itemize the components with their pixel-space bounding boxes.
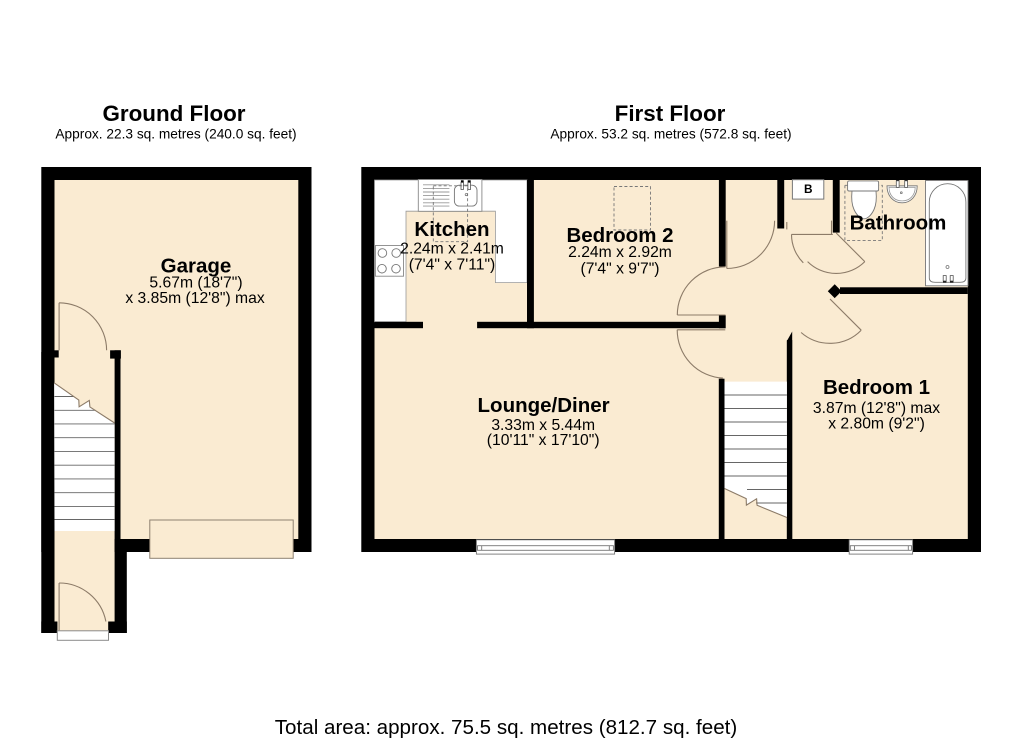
svg-text:B: B xyxy=(804,182,813,196)
svg-text:Bedroom 1: Bedroom 1 xyxy=(823,376,930,399)
svg-text:(10'11" x 17'10"): (10'11" x 17'10") xyxy=(487,432,600,449)
svg-text:5.67m (18'7"): 5.67m (18'7") xyxy=(149,275,242,292)
svg-text:(7'4" x 9'7"): (7'4" x 9'7") xyxy=(580,261,659,278)
svg-text:Lounge/Diner: Lounge/Diner xyxy=(478,394,610,417)
svg-text:Ground Floor: Ground Floor xyxy=(102,101,245,126)
svg-text:3.87m (12'8") max: 3.87m (12'8") max xyxy=(813,400,940,417)
svg-text:2.24m x 2.92m: 2.24m x 2.92m xyxy=(568,244,672,261)
svg-text:Kitchen: Kitchen xyxy=(414,218,489,241)
svg-text:Approx. 53.2 sq. metres (572.8: Approx. 53.2 sq. metres (572.8 sq. feet) xyxy=(550,127,791,142)
svg-text:x 2.80m (9'2"): x 2.80m (9'2") xyxy=(828,416,925,433)
svg-text:2.24m x 2.41m: 2.24m x 2.41m xyxy=(400,241,504,258)
svg-text:First Floor: First Floor xyxy=(615,101,726,126)
svg-text:x 3.85m (12'8") max: x 3.85m (12'8") max xyxy=(125,290,264,307)
svg-text:(7'4" x 7'11"): (7'4" x 7'11") xyxy=(409,257,496,274)
svg-text:Bathroom: Bathroom xyxy=(850,212,947,235)
svg-text:Approx. 22.3 sq. metres (240.0: Approx. 22.3 sq. metres (240.0 sq. feet) xyxy=(55,127,296,142)
svg-text:Total area: approx. 75.5 sq. m: Total area: approx. 75.5 sq. metres (812… xyxy=(275,716,737,739)
